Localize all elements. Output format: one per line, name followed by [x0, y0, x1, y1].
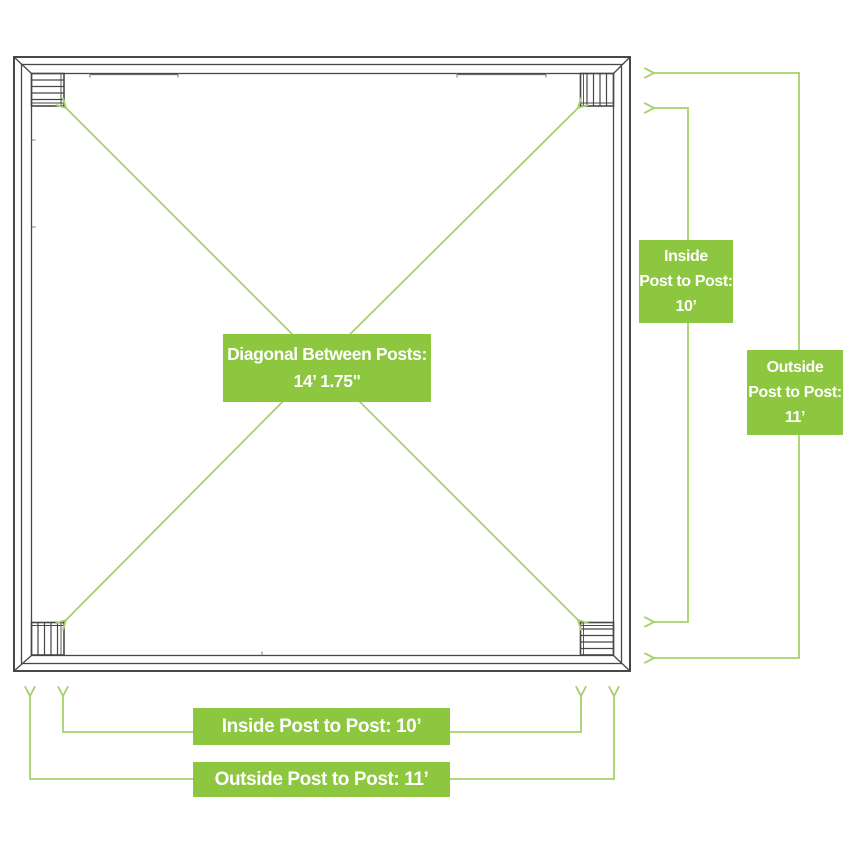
- outside-post-to-post-side-label: Outside Post to Post: 11’: [747, 350, 843, 435]
- post-bottom-right: [581, 623, 614, 656]
- post-bottom-left: [32, 623, 65, 656]
- post-top-left: [32, 74, 65, 107]
- diagonal-label-value: 14’ 1.75": [294, 368, 361, 395]
- side-outside-value: 11’: [785, 405, 805, 430]
- inside-post-to-post-side-label: Inside Post to Post: 10’: [639, 240, 733, 323]
- inside-post-to-post-bottom-label: Inside Post to Post: 10’: [193, 708, 450, 745]
- bottom-outside-text: Outside Post to Post: 11’: [215, 769, 429, 791]
- diagonal-label-text: Diagonal Between Posts:: [227, 341, 427, 368]
- side-inside-line1: Inside: [664, 244, 708, 269]
- bottom-inside-text: Inside Post to Post: 10’: [222, 716, 421, 738]
- inside-dimension-line-right: [654, 108, 688, 622]
- side-outside-line2: Post to Post:: [748, 380, 841, 405]
- pergola-dimension-diagram: Diagonal Between Posts: 14’ 1.75" Inside…: [0, 0, 854, 854]
- outside-post-to-post-bottom-label: Outside Post to Post: 11’: [193, 762, 450, 797]
- side-inside-value: 10’: [675, 294, 696, 319]
- side-inside-line2: Post to Post:: [639, 269, 732, 294]
- side-outside-line1: Outside: [767, 355, 824, 380]
- post-top-right: [581, 74, 614, 107]
- diagonal-measurement-label: Diagonal Between Posts: 14’ 1.75": [223, 334, 431, 402]
